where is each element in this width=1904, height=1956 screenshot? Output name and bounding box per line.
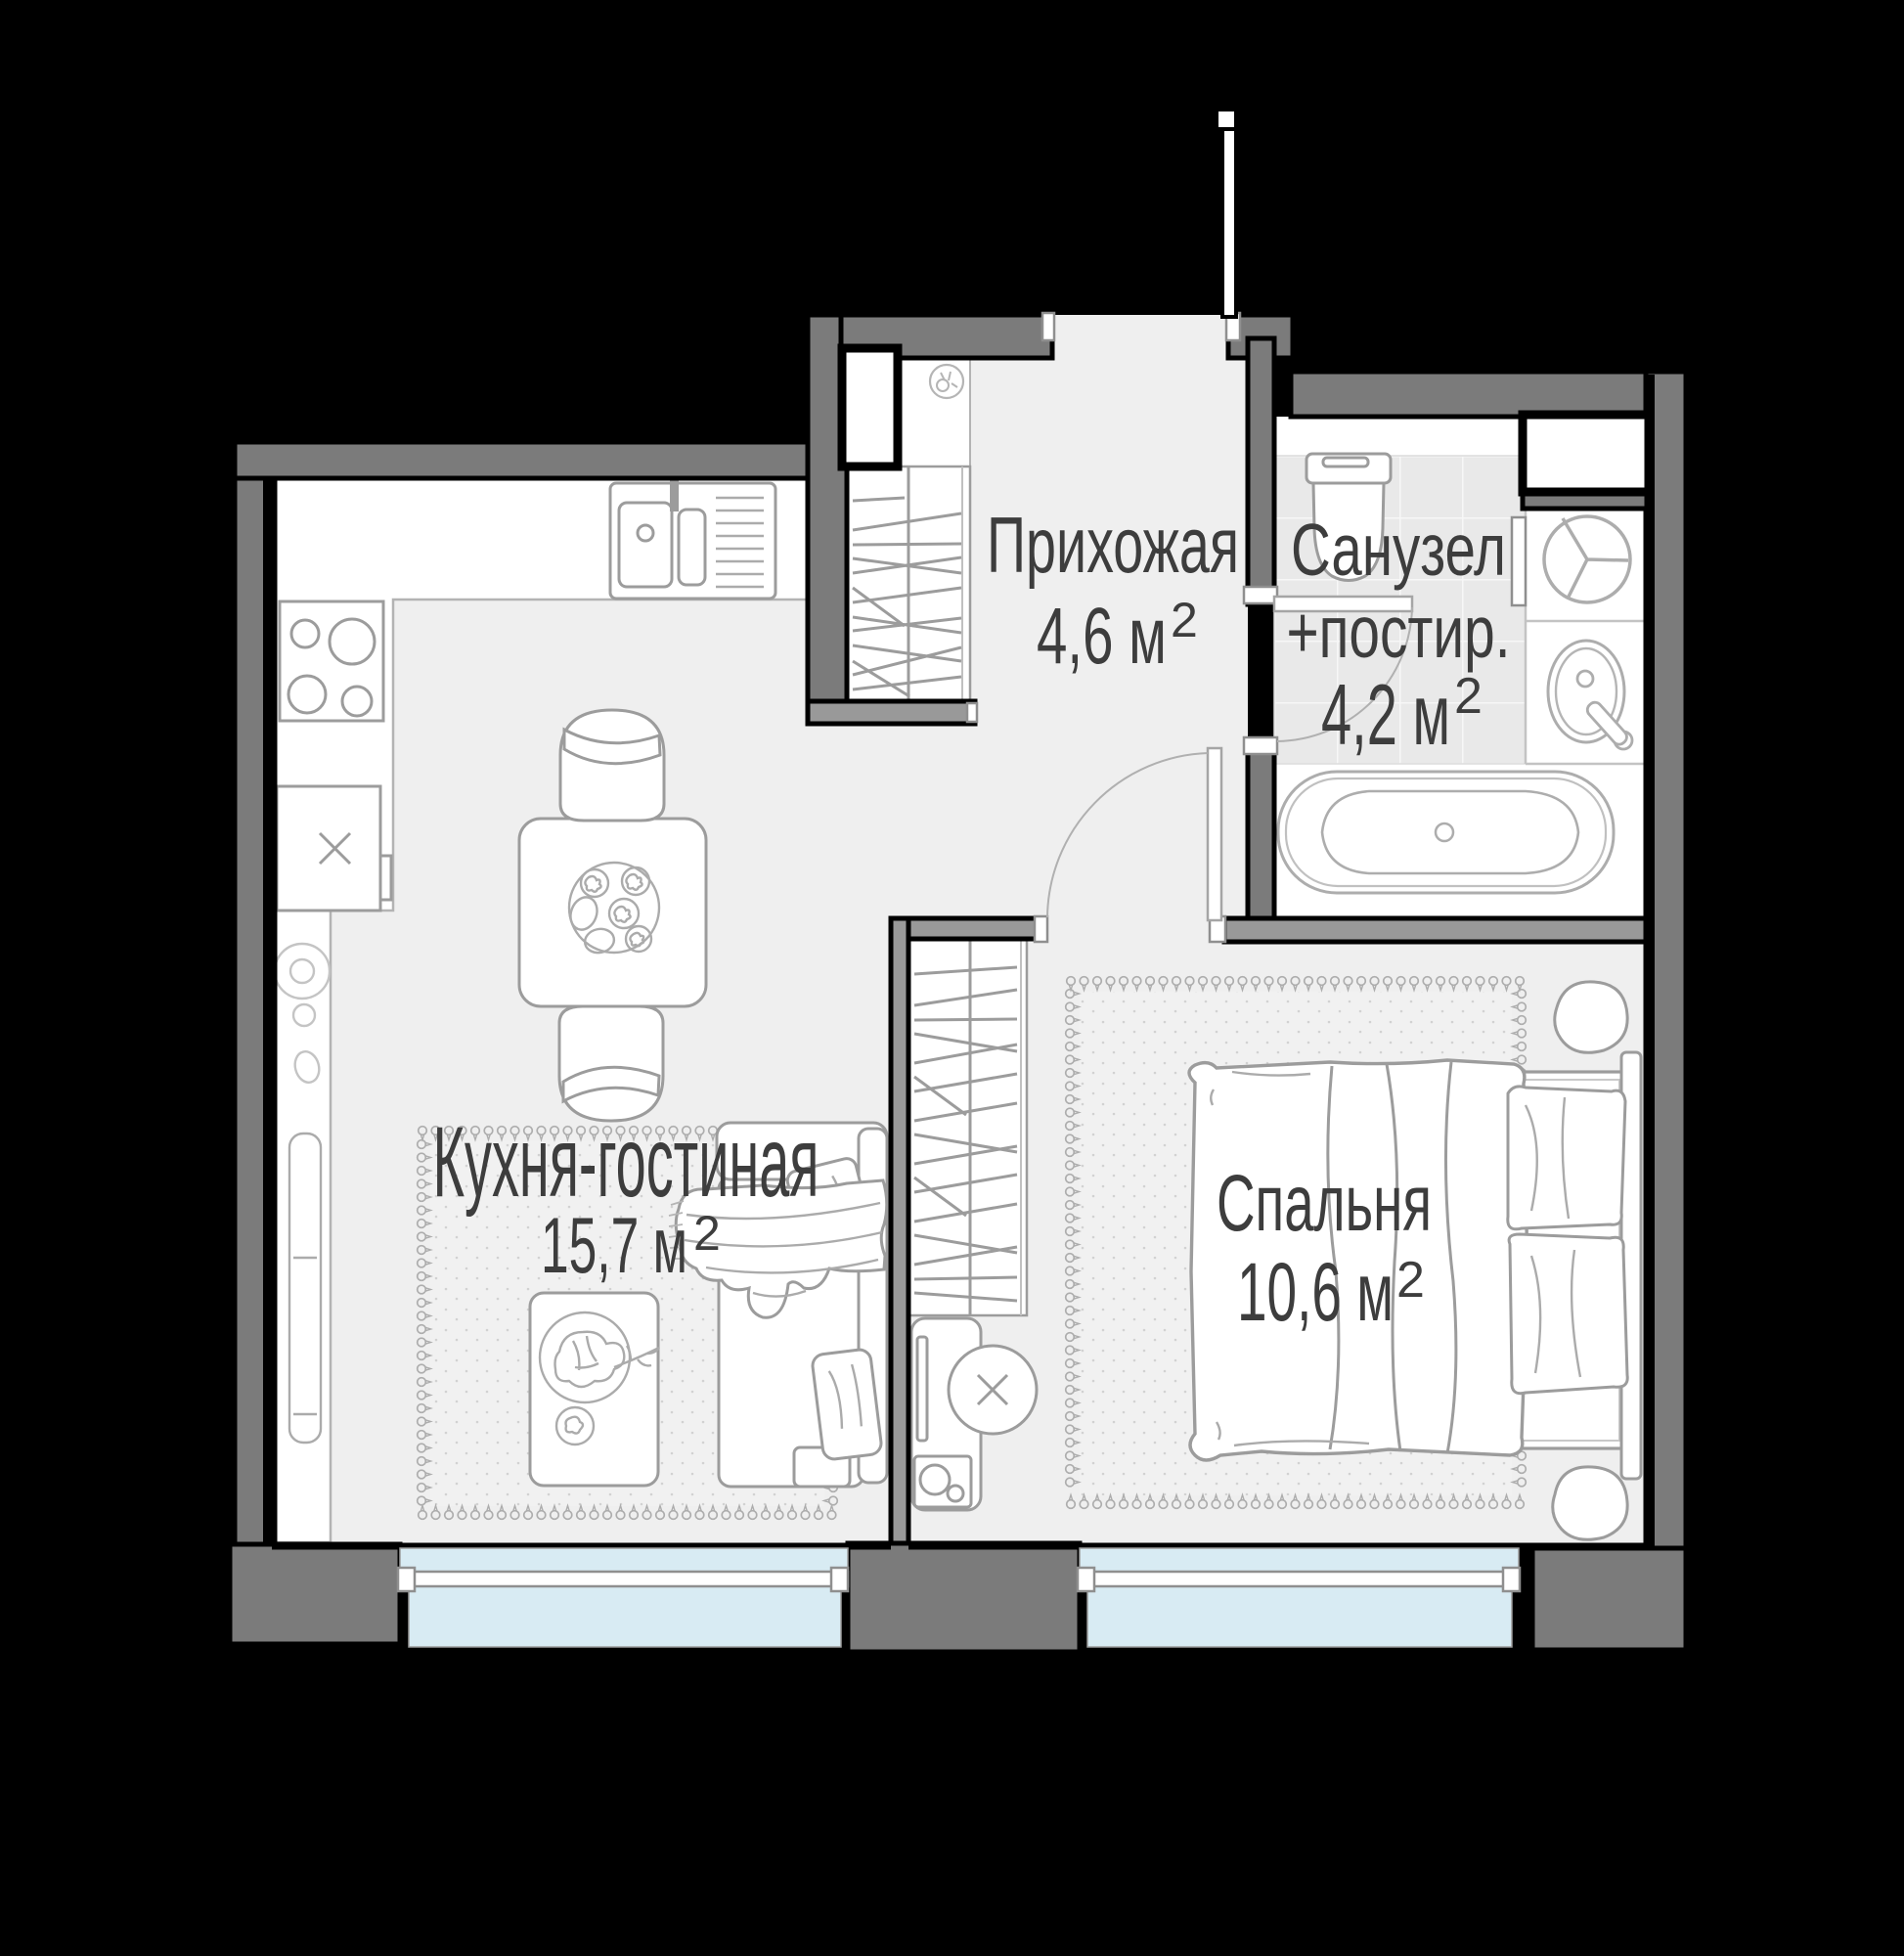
svg-text:Прихожая: Прихожая [987,502,1239,590]
svg-text:Санузел: Санузел [1291,509,1506,591]
svg-text:2: 2 [693,1206,721,1261]
svg-text:4,6 м: 4,6 м [1037,592,1167,681]
svg-text:2: 2 [1171,593,1198,647]
svg-text:Спальня: Спальня [1217,1159,1432,1248]
svg-text:2: 2 [1396,1252,1425,1309]
svg-text:2: 2 [1454,668,1483,725]
svg-text:+постир.: +постир. [1287,591,1511,673]
svg-text:15,7 м: 15,7 м [541,1202,687,1290]
svg-text:4,2 м: 4,2 м [1321,666,1450,763]
svg-text:Кухня-гостиная: Кухня-гостиная [433,1106,819,1218]
svg-text:10,6 м: 10,6 м [1237,1246,1394,1338]
